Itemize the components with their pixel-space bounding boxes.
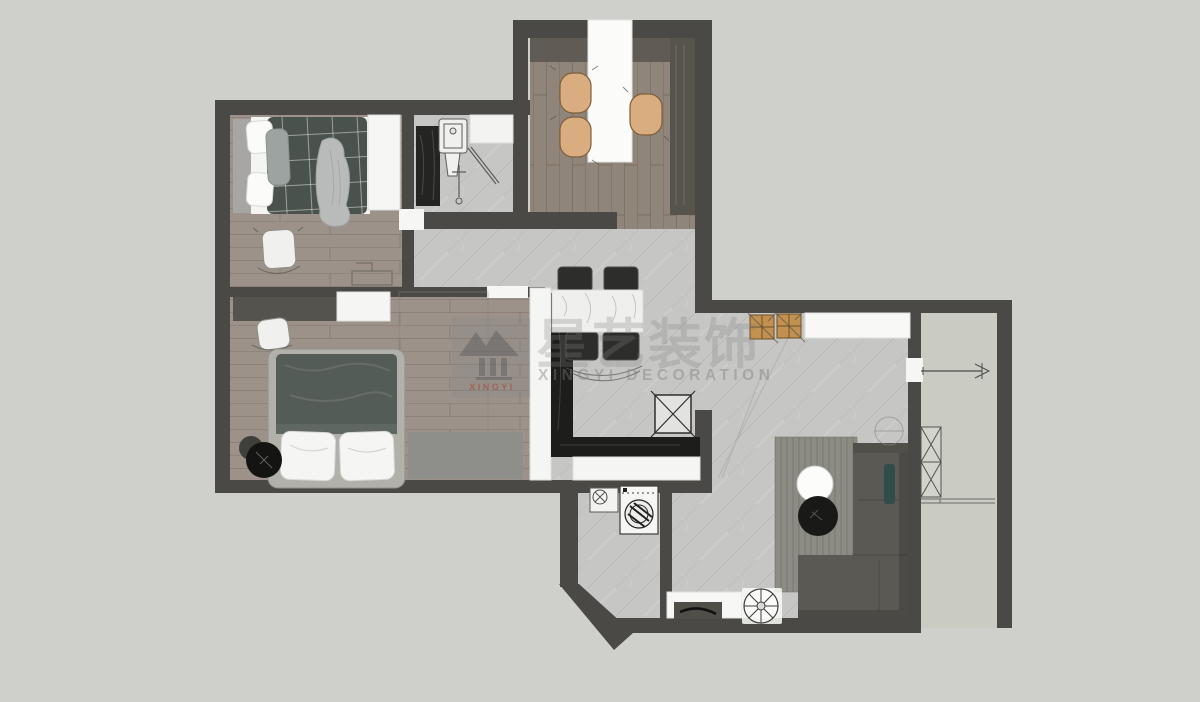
wall-dining-bathroom	[513, 38, 528, 228]
bedroom2-chair	[256, 317, 291, 351]
bedroom1-chair	[262, 229, 297, 269]
wall-top-bedroom1	[215, 100, 530, 115]
logo-base	[476, 377, 512, 380]
wall-top-living	[705, 300, 1012, 313]
sofa-chaise	[798, 555, 908, 618]
dining-chair	[630, 94, 662, 135]
fan-hub	[757, 602, 765, 610]
logo-text: XINGYI	[469, 382, 515, 392]
bar-counter	[805, 313, 910, 338]
bed2-pillow	[339, 431, 395, 481]
sofa-backrest	[899, 443, 908, 618]
bed1-gray-pillow	[266, 128, 291, 185]
floor-plan-canvas: XINGYI 星艺装饰 XINGYI DECORATION	[0, 0, 1200, 702]
logo-column	[479, 358, 485, 376]
dining-side-cabinet	[670, 38, 695, 215]
counter-black-horizontal	[551, 437, 700, 457]
shaft-box-group	[651, 391, 695, 437]
bed2-gray-mat	[408, 432, 523, 479]
coffee-table-black	[798, 496, 838, 536]
washing-machine	[620, 486, 658, 534]
dining-chair	[560, 73, 591, 113]
washer-button	[623, 488, 627, 492]
sofa-teal-pillow	[884, 464, 895, 504]
balcony-ladder	[921, 427, 941, 497]
wall-bathroom-bottom	[402, 212, 617, 229]
logo-column	[490, 358, 496, 376]
living-area	[775, 417, 908, 618]
balcony-pass-opening	[906, 358, 923, 382]
dining-table	[588, 20, 632, 162]
watermark-logo: XINGYI	[452, 318, 530, 398]
kitchen-cabinet-lower	[573, 457, 700, 480]
island-chair	[558, 267, 592, 292]
entry-bar	[746, 310, 910, 343]
sofa-backrest-bottom	[798, 610, 908, 618]
island-chair	[604, 267, 638, 292]
corridor-floor	[414, 229, 695, 290]
bed2-wardrobe	[233, 297, 337, 321]
bath-cabinet	[416, 126, 440, 206]
bedroom2-door-opening	[487, 286, 528, 298]
brand-text-cn: 星艺装饰	[536, 315, 760, 375]
bath-sink-counter	[470, 115, 513, 143]
toilet-flush-button	[450, 128, 456, 134]
dining-chair	[560, 117, 591, 157]
bed1-closet	[368, 115, 400, 210]
brand-text-en: XINGYI DECORATION	[538, 367, 774, 384]
sofa-armrest	[853, 443, 908, 453]
bed2-pillow	[280, 431, 336, 481]
wall-balcony-right	[997, 313, 1012, 628]
bed2-desk	[337, 292, 390, 321]
wall-bedroom1-bathroom	[402, 115, 414, 287]
bathroom-door-opening	[399, 209, 424, 230]
logo-column	[501, 358, 507, 376]
wall-laundry-left	[560, 480, 578, 587]
wall-right-dining	[695, 20, 712, 313]
fan	[742, 588, 782, 624]
